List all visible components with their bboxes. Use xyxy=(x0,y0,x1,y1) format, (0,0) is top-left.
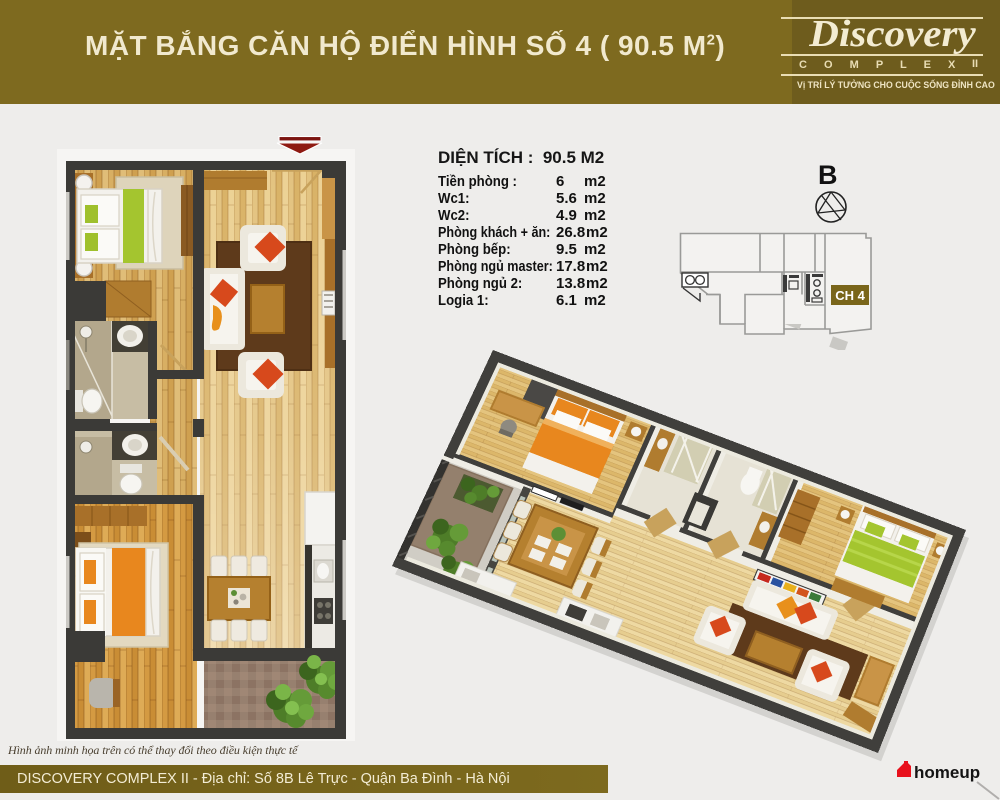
svg-text:homeup: homeup xyxy=(914,763,980,782)
